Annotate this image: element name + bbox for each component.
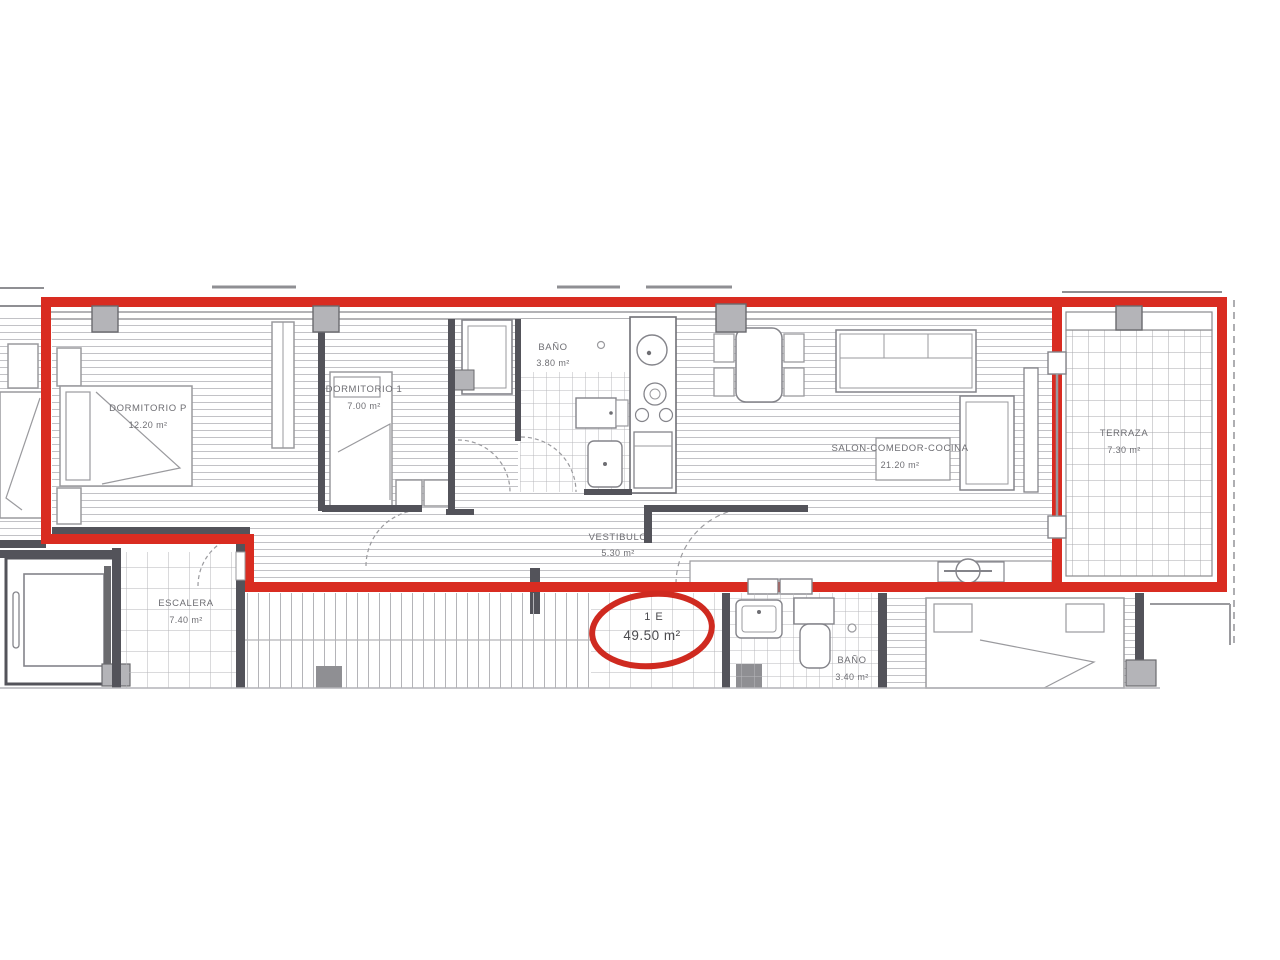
adjacent-nightstand	[8, 344, 38, 388]
door-gap	[236, 552, 245, 580]
nightstand	[424, 480, 450, 506]
room-name: ESCALERA	[158, 598, 214, 609]
elevator-handrail	[13, 592, 19, 648]
wall-pier	[452, 370, 474, 390]
dining-chair	[714, 334, 734, 362]
kitchen-sink-icon	[637, 335, 667, 365]
wall	[112, 548, 121, 688]
room-name: VESTIBULO	[589, 532, 648, 543]
pillar	[716, 304, 746, 332]
floor-plan-drawing: DORMITORIO P 12.20 m² DORMITORIO 1 7.00 …	[0, 0, 1280, 960]
room-banyo-2: BAÑO 3.40 m²	[730, 593, 887, 688]
tv-unit	[1024, 368, 1038, 492]
entrance-door-leaf	[780, 579, 812, 594]
room-name: SALON-COMEDOR-COCINA	[831, 443, 968, 454]
dining-table	[736, 328, 782, 402]
wall	[1135, 593, 1144, 663]
wall	[448, 319, 455, 509]
dining-chair	[784, 334, 804, 362]
wall	[652, 505, 808, 512]
floor-plan-page: DORMITORIO P 12.20 m² DORMITORIO 1 7.00 …	[0, 0, 1280, 960]
sink-drain	[647, 351, 651, 355]
hob-burner-large	[644, 383, 666, 405]
room-name: BAÑO	[837, 655, 866, 666]
hob-burner-small	[636, 409, 649, 422]
nightstand	[57, 488, 81, 524]
pillar	[92, 306, 118, 332]
room-area: 12.20 m²	[129, 420, 168, 430]
room-banyo-1: BAÑO 3.80 m²	[518, 319, 632, 493]
entrance-door-leaf	[748, 579, 778, 594]
adjacent-wall	[0, 540, 46, 548]
hob-burner-small	[660, 409, 673, 422]
room-area: 7.30 m²	[1107, 445, 1140, 455]
room-area: 7.40 m²	[169, 615, 202, 625]
unit-badge-area: 49.50 m²	[623, 628, 680, 643]
room-escalera: ESCALERA 7.40 m²	[112, 544, 245, 688]
elevator-rail	[104, 566, 111, 678]
kitchen-strip	[630, 317, 676, 493]
room-area: 21.20 m²	[881, 460, 920, 470]
wall	[52, 527, 250, 534]
drain-dot	[603, 462, 607, 466]
unit-badge-code: 1 E	[644, 611, 664, 623]
wall	[722, 593, 730, 688]
wall	[322, 505, 422, 512]
room-name: DORMITORIO 1	[326, 384, 403, 395]
room-area: 3.40 m²	[835, 672, 868, 682]
wall	[318, 319, 325, 511]
elevator-car	[24, 574, 104, 666]
nightstand	[57, 348, 81, 386]
room-name: DORMITORIO P	[109, 403, 187, 414]
wall	[878, 593, 887, 688]
pillow	[1066, 604, 1104, 632]
room-name: TERRAZA	[1100, 428, 1149, 439]
terrace-door-jamb	[1048, 352, 1066, 374]
toilet-bowl	[800, 624, 830, 668]
pillar	[1116, 306, 1142, 330]
pillow	[934, 604, 972, 632]
pillar	[313, 306, 339, 332]
wall	[446, 509, 474, 515]
kitchen-cabinet	[634, 432, 672, 488]
dining-chair	[784, 368, 804, 396]
wall	[644, 505, 652, 543]
room-area: 3.80 m²	[536, 358, 569, 368]
room-area: 7.00 m²	[347, 401, 380, 411]
terrace-door-jamb	[1048, 516, 1066, 538]
sofa	[836, 330, 976, 392]
tap-dot	[757, 610, 761, 614]
dining-chair	[714, 368, 734, 396]
room-area: 5.30 m²	[601, 548, 634, 558]
toilet-tank	[794, 598, 834, 624]
wall	[515, 319, 521, 441]
pillar	[316, 666, 342, 688]
nightstand	[396, 480, 422, 506]
washbasin-side	[616, 400, 628, 426]
pillar	[1126, 660, 1156, 686]
elevator	[0, 550, 130, 686]
lower-bedroom	[887, 593, 1230, 688]
room-name: BAÑO	[538, 342, 567, 353]
wall	[584, 489, 632, 495]
stair-corridor	[245, 593, 591, 688]
pillow	[66, 392, 90, 480]
tap-dot	[609, 411, 613, 415]
adjacent-unit-left	[0, 314, 46, 548]
